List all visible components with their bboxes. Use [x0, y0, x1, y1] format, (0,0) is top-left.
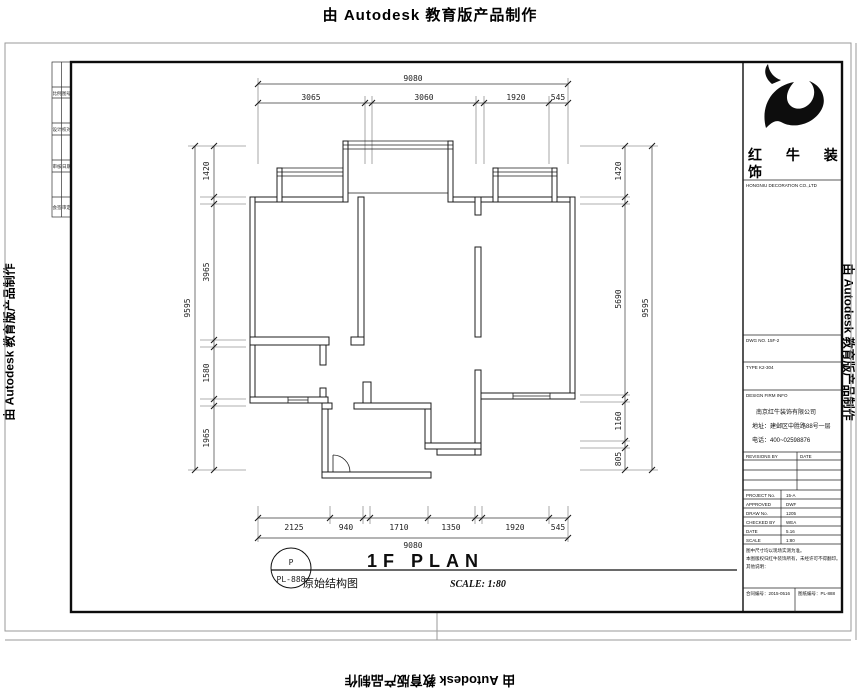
dim-bottom-seg: 545 [551, 523, 566, 532]
dim-right-seg: 805 [614, 452, 623, 467]
dim-bottom-seg: 1710 [389, 523, 408, 532]
field-value: WEA [786, 520, 796, 525]
plan-subtitle: 原始结构图 [303, 576, 358, 590]
field-value: 15-A [786, 493, 796, 498]
company-line: 南京红牛装饰有限公司 [756, 408, 816, 416]
dim-left: 1420 3965 1580 1965 9595 [183, 143, 246, 473]
field-label: PROJECT No. [746, 493, 775, 498]
field-value: 5.16 [786, 529, 795, 534]
note-line: 其他说明： [746, 563, 769, 570]
dim-right-seg: 5690 [614, 289, 623, 308]
field-value: 1205 [786, 511, 797, 516]
bull-logo [764, 64, 823, 128]
company-line: 地址：建邺区中胜路88号一层 [752, 422, 831, 430]
window-lines [277, 141, 557, 403]
revisions-date-header: DATE [800, 454, 812, 459]
dim-right-seg: 1420 [614, 161, 623, 180]
dim-bottom-overall: 9080 [403, 541, 422, 550]
plot-sheet: 由 Autodesk 教育版产品制作 由 Autodesk 教育版产品制作 由 … [0, 0, 860, 688]
dim-top: 9080 3065 3060 1920 545 [255, 74, 571, 164]
dim-right-seg: 1160 [614, 411, 623, 430]
note-line: 图中尺寸均以现场实测为准。 [746, 547, 805, 554]
dim-bottom-seg: 1350 [441, 523, 460, 532]
company-header: DESIGN FIRM INFO [746, 393, 788, 398]
company-line: 电话：400~02598876 [752, 436, 811, 444]
revisions-header: REVISIONS BY [746, 454, 778, 459]
strip-cell: 设计 [53, 126, 62, 133]
strip-cell: 会签 [53, 204, 62, 211]
dim-bottom-seg: 1920 [505, 523, 524, 532]
dim-top-overall: 9080 [403, 74, 422, 83]
sheet-svg: 比例 图号 设计 校对 审核 日期 会签 审定 9080 3065 306 [0, 0, 860, 688]
logo-text-line1: 红 牛 装 [748, 147, 848, 163]
dim-left-seg: 1420 [202, 161, 211, 180]
logo-sub: HONGNIU DECORATION CO.,LTD [746, 183, 818, 188]
dim-left-seg: 1580 [202, 363, 211, 382]
dim-bottom: 2125 940 1710 1350 1920 545 9080 [255, 506, 571, 550]
dim-left-seg: 1965 [202, 428, 211, 447]
field-label: CHECKED BY [746, 520, 775, 525]
floor-plan [250, 141, 575, 478]
strip-cell: 比例 [53, 90, 62, 97]
dim-right-overall: 9595 [641, 298, 650, 317]
door-swing [333, 455, 350, 472]
door-openings [320, 215, 481, 409]
title-block: 红 牛 装 饰 HONGNIU DECORATION CO.,LTD DWG N… [743, 64, 848, 612]
strip-cell: 审核 [53, 163, 62, 170]
tag-letter: P [289, 558, 294, 567]
tag-number: PL-888 [277, 575, 306, 584]
field-value: 1:80 [786, 538, 795, 543]
contract-number: 合同编号：2015-0516 [746, 590, 791, 597]
dim-left-overall: 9595 [183, 298, 192, 317]
field-label: DRAW No. [746, 511, 768, 516]
dim-bottom-seg: 940 [339, 523, 354, 532]
plan-scale: SCALE: 1:80 [450, 579, 506, 590]
tb-row2: TYPE K2-304 [746, 365, 774, 370]
dim-right: 1420 5690 1160 805 9595 [580, 143, 658, 473]
field-value: DWF [786, 502, 796, 507]
dim-top-seg: 545 [551, 93, 566, 102]
field-label: APPROVED [746, 502, 772, 507]
title-area: P PL-888 1F PLAN 原始结构图 SCALE: 1:80 [271, 548, 737, 590]
note-line: 本图版权归红牛装饰所有，未经许可不得翻印。 [746, 555, 841, 562]
dim-top-seg: 1920 [506, 93, 525, 102]
dim-top-seg: 3065 [301, 93, 320, 102]
sheet-number: 图纸编号：PL-888 [798, 590, 836, 597]
tb-row1: DWG NO. 15F-2 [746, 338, 780, 343]
plan-title: 1F PLAN [367, 551, 484, 571]
walls [250, 141, 575, 478]
dim-bottom-seg: 2125 [284, 523, 303, 532]
dim-left-seg: 3965 [202, 262, 211, 281]
logo-text-line2: 饰 [748, 164, 772, 180]
side-strip: 比例 图号 设计 校对 审核 日期 会签 审定 [52, 62, 71, 217]
field-label: SCALE [746, 538, 761, 543]
field-label: DATE [746, 529, 758, 534]
dim-top-seg: 3060 [414, 93, 433, 102]
